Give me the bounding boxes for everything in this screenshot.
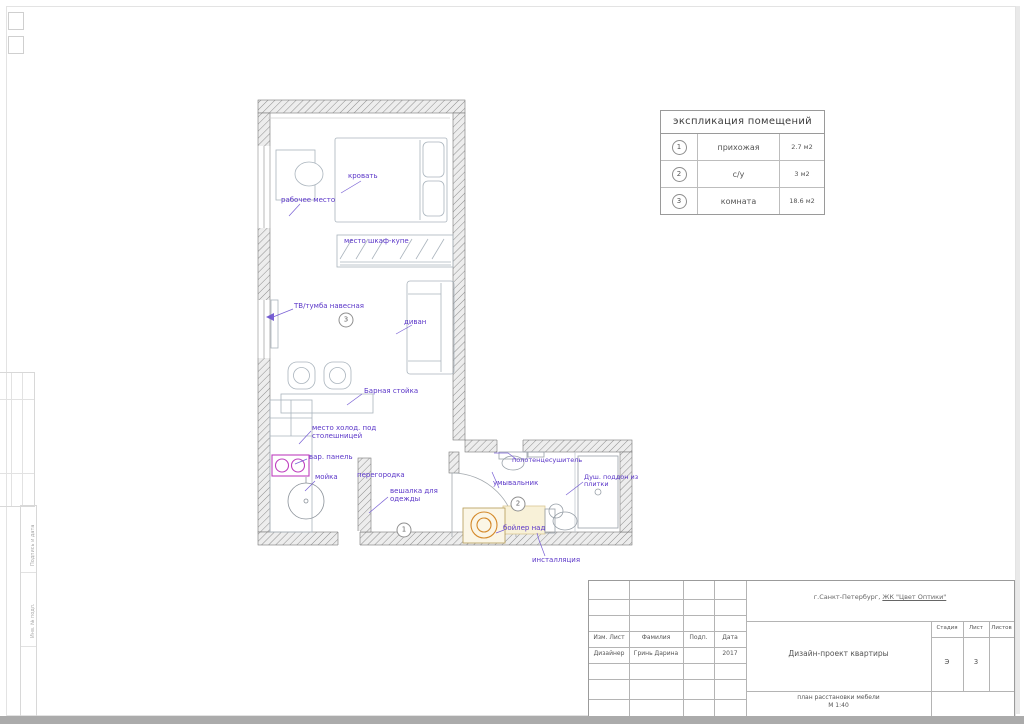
frame-vertical-label: Инв. № подл. xyxy=(30,604,36,639)
table-line xyxy=(0,473,34,474)
table-line xyxy=(931,621,932,716)
screenshot-right-edge xyxy=(1016,6,1020,714)
stage-value: Э xyxy=(931,658,963,667)
frame-corner-box xyxy=(8,12,24,30)
sheet-label: Лист xyxy=(963,625,989,632)
table-line xyxy=(931,637,1014,638)
sheet-value: 3 xyxy=(963,658,989,667)
col-header-izm-list: Изм. Лист xyxy=(589,634,629,642)
frame-vertical-label: Подпись и дата xyxy=(30,525,36,566)
row-role: Дизайнер xyxy=(589,650,629,658)
room-name: прихожая xyxy=(698,134,780,160)
label-bar: Барная стойка xyxy=(364,387,418,395)
stage-label: Стадия xyxy=(931,625,963,632)
frame-corner-box xyxy=(8,36,24,54)
room-marker-3: 3 xyxy=(339,313,354,328)
table-line xyxy=(589,599,746,600)
row-date: 2017 xyxy=(714,650,746,658)
label-towel: полотенцесушитель xyxy=(512,457,582,464)
room-name: с/у xyxy=(698,161,780,187)
table-line xyxy=(589,631,746,632)
label-fridge: место холод. под столешницей xyxy=(312,424,376,440)
table-line xyxy=(746,691,1014,692)
table-line xyxy=(589,647,746,648)
label-bed: кровать xyxy=(348,172,378,180)
table-line xyxy=(589,663,746,664)
label-tv: ТВ/тумба навесная xyxy=(294,302,364,310)
room-area: 18.6 м2 xyxy=(780,188,824,214)
label-wardrobe: место шкаф-купе xyxy=(344,237,409,245)
room-marker-2: 2 xyxy=(511,497,526,512)
sheets-label: Листов xyxy=(989,625,1014,632)
table-line xyxy=(629,581,630,716)
screenshot-bottom-edge xyxy=(0,716,1024,724)
table-line xyxy=(746,621,1014,622)
room-number-badge: 1 xyxy=(672,140,687,155)
col-header-podp: Подп. xyxy=(683,634,714,642)
label-sofa: диван xyxy=(404,318,426,326)
col-header-data: Дата xyxy=(714,634,746,642)
label-partition: перегородка xyxy=(357,471,405,479)
left-margin-table xyxy=(0,372,35,507)
project-title: Дизайн-проект квартиры xyxy=(746,649,931,659)
label-boiler: бойлер над xyxy=(503,524,545,532)
table-line xyxy=(683,581,684,716)
table-line xyxy=(714,581,715,716)
table-line xyxy=(589,615,746,616)
label-basin: умывальник xyxy=(493,479,538,487)
table-line xyxy=(11,373,12,506)
room-name: комната xyxy=(698,188,780,214)
project-location: г.Санкт-Петербург, ЖК "Цвет Оптики" xyxy=(746,593,1014,601)
explication-title: экспликация помещений xyxy=(661,111,824,134)
left-margin-strip: Подпись и дата Инв. № подл. xyxy=(20,505,37,718)
label-installation: инсталляция xyxy=(532,556,580,564)
room-number-badge: 3 xyxy=(672,194,687,209)
room-marker-1: 1 xyxy=(397,523,412,538)
row-name: Гринь Дарина xyxy=(629,650,683,658)
label-sink: мойка xyxy=(315,473,338,481)
table-row: 1 прихожая 2.7 м2 xyxy=(661,134,824,161)
title-block: г.Санкт-Петербург, ЖК "Цвет Оптики" Изм.… xyxy=(588,580,1015,717)
table-line xyxy=(21,646,36,647)
sheet-caption: план расстановки мебели М 1:40 xyxy=(746,694,931,710)
table-line xyxy=(0,399,34,400)
table-row: 2 с/у 3 м2 xyxy=(661,161,824,188)
room-number-badge: 2 xyxy=(672,167,687,182)
room-area: 2.7 м2 xyxy=(780,134,824,160)
table-line xyxy=(21,572,36,573)
table-row: 3 комната 18.6 м2 xyxy=(661,188,824,214)
col-header-fam: Фамилия xyxy=(629,634,683,642)
location-city: г.Санкт-Петербург, xyxy=(814,593,883,601)
room-area: 3 м2 xyxy=(780,161,824,187)
drawing-sheet: Подпись и дата Инв. № подл. xyxy=(0,0,1024,724)
location-complex: ЖК "Цвет Оптики" xyxy=(882,593,946,601)
table-line xyxy=(589,679,746,680)
label-workplace: рабочее место xyxy=(281,196,335,204)
label-hanger: вешалка для одежды xyxy=(390,487,438,503)
explication-table: экспликация помещений 1 прихожая 2.7 м2 … xyxy=(660,110,825,215)
label-shower: Душ. поддон из плитки xyxy=(584,474,638,489)
label-hob: вар. панель xyxy=(309,453,353,461)
table-line xyxy=(589,699,746,700)
table-line xyxy=(22,373,23,506)
